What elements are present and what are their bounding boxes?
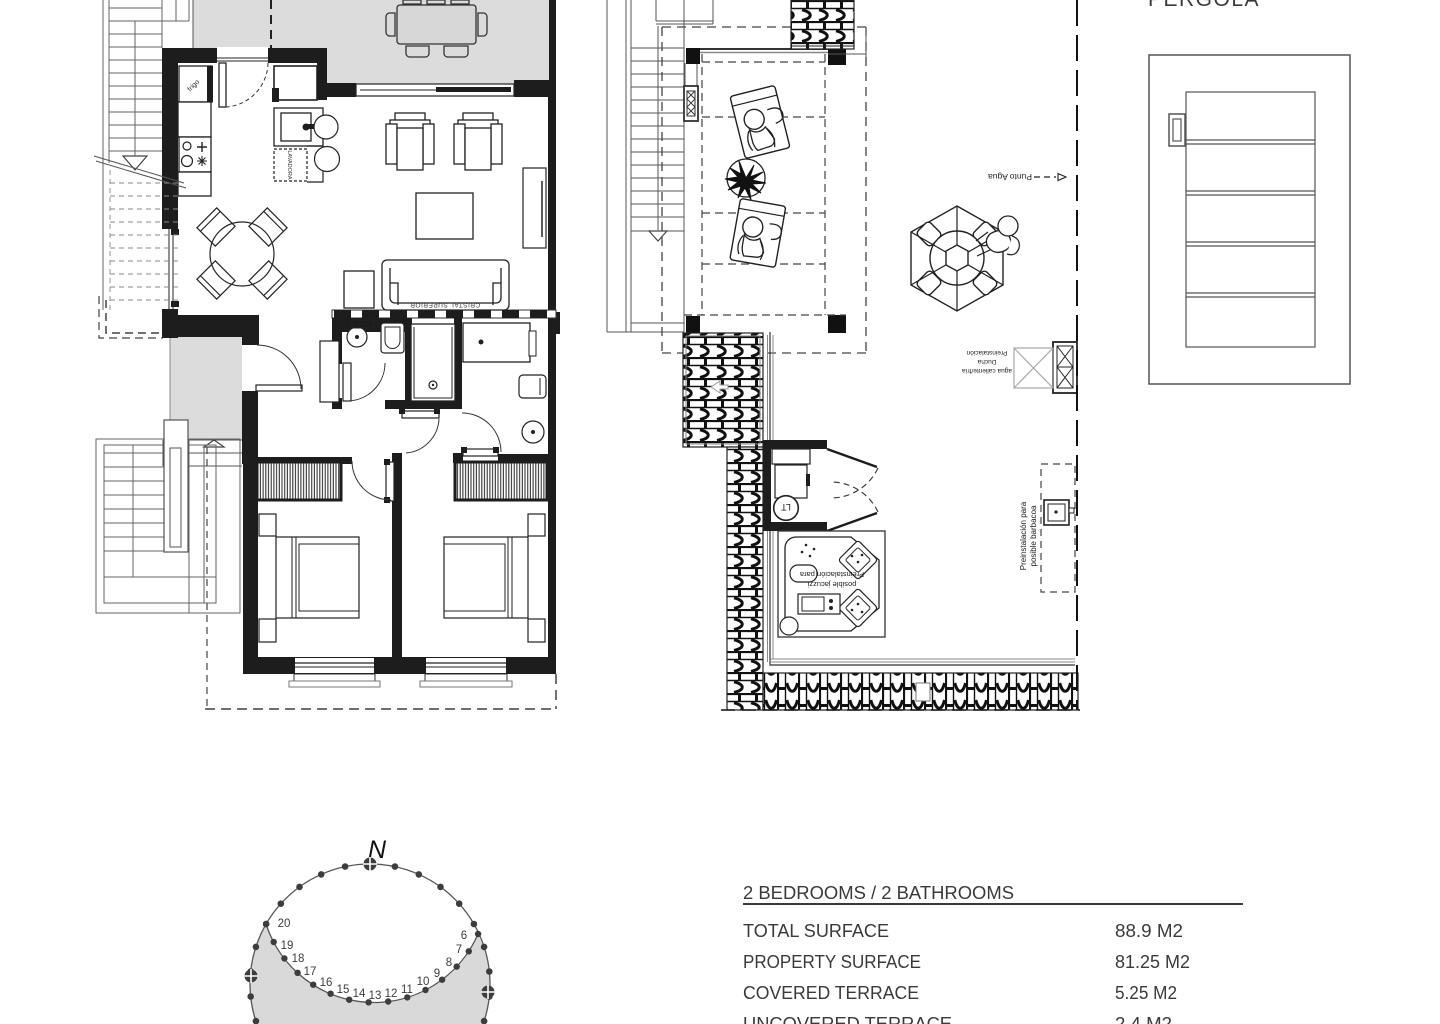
- svg-text:19: 19: [281, 940, 294, 952]
- svg-text:posible jacuzzi: posible jacuzzi: [807, 580, 856, 589]
- svg-text:8: 8: [446, 957, 452, 969]
- svg-text:Preinstalación: Preinstalación: [966, 349, 1007, 356]
- svg-text:6: 6: [461, 930, 467, 942]
- svg-text:7: 7: [456, 944, 462, 956]
- svg-text:10: 10: [417, 976, 430, 988]
- svg-text:18: 18: [292, 953, 305, 965]
- svg-text:UNCOVERED TERRACE: UNCOVERED TERRACE: [743, 1014, 952, 1024]
- svg-text:2.4 M2: 2.4 M2: [1115, 1014, 1172, 1024]
- svg-text:5.25 M2: 5.25 M2: [1115, 983, 1177, 1003]
- svg-text:88.9 M2: 88.9 M2: [1115, 921, 1183, 941]
- svg-text:Preinstalación para: Preinstalación para: [799, 570, 864, 579]
- svg-text:12: 12: [385, 988, 398, 1000]
- svg-text:Punto Agua: Punto Agua: [988, 172, 1032, 182]
- svg-text:16: 16: [320, 977, 333, 989]
- svg-text:9: 9: [434, 968, 440, 980]
- svg-text:81.25 M2: 81.25 M2: [1115, 952, 1190, 972]
- svg-text:20: 20: [278, 918, 291, 930]
- svg-text:13: 13: [369, 990, 382, 1002]
- svg-text:11: 11: [401, 984, 413, 996]
- svg-text:14: 14: [353, 988, 366, 1000]
- svg-text:15: 15: [337, 984, 350, 996]
- svg-text:Ducha: Ducha: [977, 358, 996, 365]
- svg-text:COVERED TERRACE: COVERED TERRACE: [743, 983, 919, 1003]
- svg-text:TOTAL SURFACE: TOTAL SURFACE: [743, 921, 889, 941]
- svg-text:CRISTAL SUPERIOR: CRISTAL SUPERIOR: [410, 301, 480, 308]
- svg-text:PROPERTY SURFACE: PROPERTY SURFACE: [743, 952, 921, 972]
- svg-text:posible barbacoa: posible barbacoa: [1029, 505, 1038, 566]
- svg-text:17: 17: [304, 966, 317, 978]
- svg-text:Preinstalación para: Preinstalación para: [1019, 501, 1028, 570]
- svg-text:LT: LT: [781, 502, 791, 512]
- svg-text:agua caliente/fría: agua caliente/fría: [962, 367, 1012, 374]
- svg-text:LAVADORA: LAVADORA: [286, 150, 292, 179]
- svg-text:2 BEDROOMS / 2 BATHROOMS: 2 BEDROOMS / 2 BATHROOMS: [743, 882, 1014, 903]
- svg-text:PERGOLA: PERGOLA: [1148, 0, 1260, 11]
